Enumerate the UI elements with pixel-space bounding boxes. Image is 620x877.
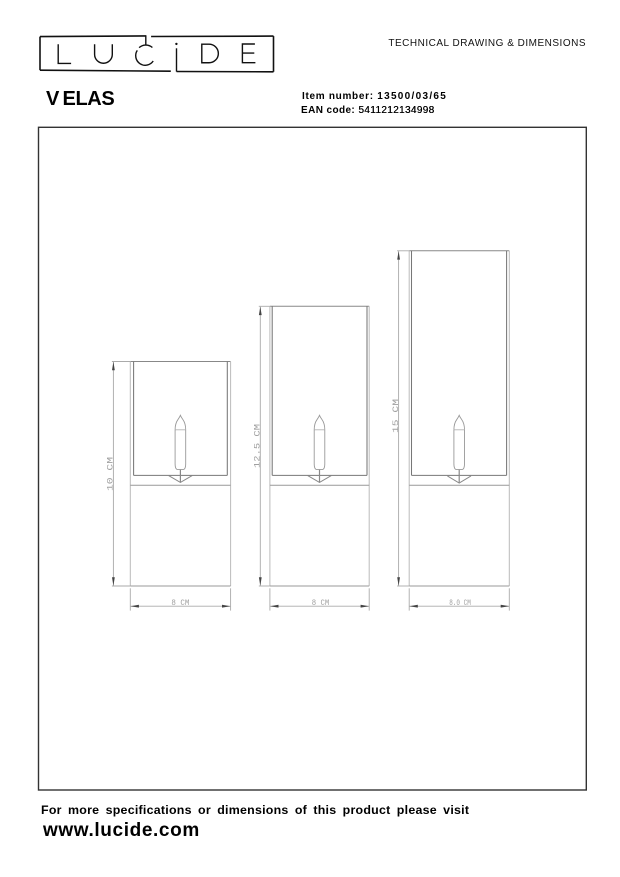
svg-text:12.5 CM: 12.5 CM (253, 424, 263, 468)
svg-text:8 CM: 8 CM (171, 598, 189, 608)
svg-text:8.0 CM: 8.0 CM (449, 598, 471, 608)
svg-text:15 CM: 15 CM (391, 399, 401, 433)
svg-text:10 CM: 10 CM (106, 457, 116, 491)
svg-text:8 CM: 8 CM (312, 598, 330, 608)
